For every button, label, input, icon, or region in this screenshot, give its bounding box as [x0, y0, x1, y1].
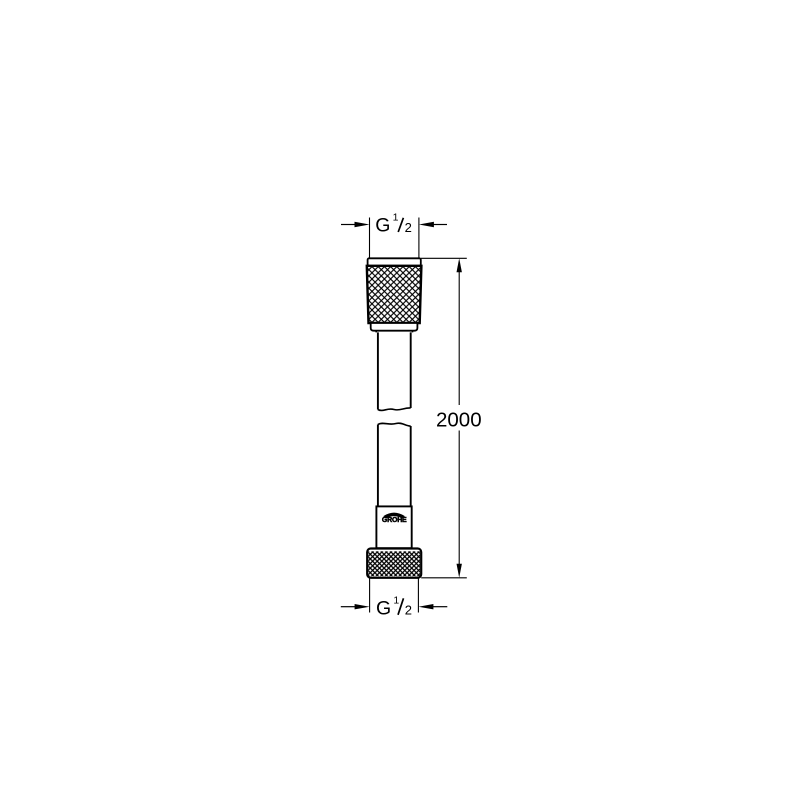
- svg-text:1: 1: [393, 212, 399, 224]
- svg-text:G: G: [376, 598, 391, 620]
- svg-text:2: 2: [405, 220, 412, 235]
- svg-text:2000: 2000: [436, 409, 482, 432]
- svg-text:G: G: [375, 215, 390, 237]
- svg-text:2: 2: [405, 603, 412, 618]
- svg-text:GROHE: GROHE: [382, 517, 407, 524]
- svg-text:1: 1: [393, 594, 399, 606]
